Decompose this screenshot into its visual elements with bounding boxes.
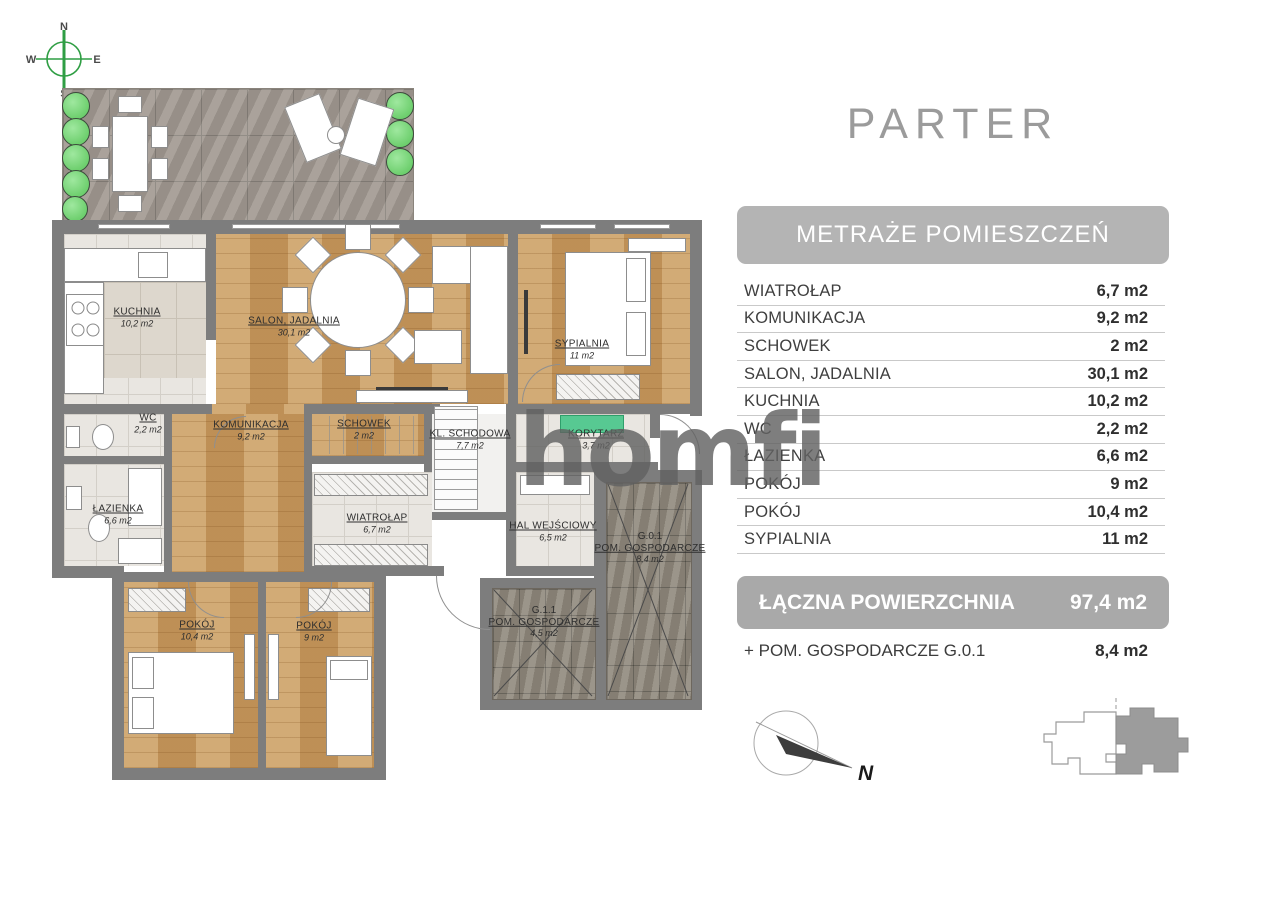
wall <box>312 456 432 464</box>
chair <box>345 224 371 250</box>
room-area: 9 m2 <box>296 632 331 644</box>
room-name: POKÓJ <box>296 621 331 633</box>
room-code: G.0.1 <box>595 531 706 543</box>
door-arc <box>436 576 490 630</box>
outdoor-side-table <box>327 126 345 144</box>
room-label-schowek: SCHOWEK2 m2 <box>337 419 391 442</box>
room-area: 30,1 m2 <box>248 327 340 339</box>
wall <box>506 566 606 576</box>
legend-row-value: 10,2 m2 <box>1087 392 1148 411</box>
wall <box>508 234 518 404</box>
room-name: KL. SCHODOWA <box>429 429 510 441</box>
compass-small-w: W <box>26 54 37 66</box>
room-name: WIATROŁAP <box>347 513 408 525</box>
wardrobe <box>128 588 186 612</box>
total-area-value: 97,4 m2 <box>1070 591 1147 615</box>
tv <box>376 387 448 390</box>
legend-row-label: SALON, JADALNIA <box>744 365 891 384</box>
legend-row-value: 30,1 m2 <box>1087 365 1148 384</box>
room-area: 11 m2 <box>555 350 609 362</box>
room-area: 6,5 m2 <box>509 532 596 544</box>
pillow <box>330 660 368 680</box>
coffee-table <box>414 330 462 364</box>
legend-row-value: 6,7 m2 <box>1097 282 1148 301</box>
room-name: POM. GOSPODARCZE <box>489 616 600 628</box>
room-area: 2,2 m2 <box>134 424 162 436</box>
room-name: WC <box>134 413 162 425</box>
room-label-kl-schodowa: KL. SCHODOWA7,7 m2 <box>429 429 510 452</box>
bush <box>62 144 90 172</box>
wardrobe <box>314 544 428 566</box>
room-name: HAL WEJŚCIOWY <box>509 521 596 533</box>
room-name: POM. GOSPODARCZE <box>595 542 706 554</box>
chair <box>118 195 142 212</box>
wall <box>52 220 64 578</box>
sofa <box>470 246 508 374</box>
legend-row-value: 6,6 m2 <box>1097 447 1148 466</box>
wall <box>300 404 440 414</box>
window <box>540 224 596 229</box>
pillow <box>626 258 646 302</box>
bush <box>386 120 414 148</box>
room-name: ŁAZIENKA <box>93 504 144 516</box>
wall <box>506 462 516 568</box>
room-label-g01: G.0.1POM. GOSPODARCZE8,4 m2 <box>595 531 706 566</box>
compass-small-e: E <box>93 54 100 66</box>
stove-burners <box>66 294 104 346</box>
wall <box>258 582 266 768</box>
room-label-komunikacja: KOMUNIKACJA9,2 m2 <box>213 420 289 443</box>
wall <box>432 512 512 520</box>
chair <box>282 287 308 313</box>
chair <box>92 158 109 180</box>
dresser <box>244 634 255 700</box>
legend-row-value: 2,2 m2 <box>1097 420 1148 439</box>
room-area: 2 m2 <box>337 430 391 442</box>
wall <box>64 456 172 464</box>
extra-area-label: + POM. GOSPODARCZE G.0.1 <box>744 641 985 661</box>
chair <box>92 126 109 148</box>
room-area: 10,4 m2 <box>179 631 214 643</box>
page-title: PARTER <box>737 100 1169 149</box>
chair <box>345 350 371 376</box>
legend-row-value: 9 m2 <box>1110 475 1148 494</box>
wall <box>480 578 594 588</box>
compass-small-icon: N W E S <box>26 22 102 98</box>
homfi-watermark: homfi <box>518 392 808 509</box>
room-label-salon: SALON, JADALNIA30,1 m2 <box>248 316 340 339</box>
room-area: 6,7 m2 <box>347 524 408 536</box>
room-area: 7,7 m2 <box>429 440 510 452</box>
floorplan-page: N W E S <box>0 0 1280 904</box>
wall <box>690 220 702 416</box>
chair <box>408 287 434 313</box>
window <box>98 224 170 229</box>
bush <box>62 118 90 146</box>
bush <box>62 196 88 222</box>
stairs <box>434 406 478 510</box>
chair <box>118 96 142 113</box>
wall <box>164 404 172 576</box>
legend-row-label: SCHOWEK <box>744 337 831 356</box>
room-name: POKÓJ <box>179 620 214 632</box>
window <box>614 224 670 229</box>
room-label-g11: G.1.1POM. GOSPODARCZE4,5 m2 <box>489 605 600 640</box>
bush <box>386 148 414 176</box>
kuchnia-floor-inner <box>104 282 206 378</box>
kitchen-sink <box>138 252 168 278</box>
room-name: SYPIALNIA <box>555 339 609 351</box>
room-label-wiatrolap: WIATROŁAP6,7 m2 <box>347 513 408 536</box>
room-area: 6,6 m2 <box>93 515 144 527</box>
total-area-bar: ŁĄCZNA POWIERZCHNIA 97,4 m2 <box>737 576 1169 629</box>
chair <box>151 158 168 180</box>
sliding-door <box>232 224 400 229</box>
legend-row-value: 11 m2 <box>1102 530 1148 549</box>
compass-large-icon: N <box>740 698 880 798</box>
wall <box>304 404 312 576</box>
extra-area-row: + POM. GOSPODARCZE G.0.1 8,4 m2 <box>737 641 1165 661</box>
legend-header: METRAŻE POMIESZCZEŃ <box>737 206 1169 264</box>
building-locator-icon <box>1032 696 1200 788</box>
room-label-kuchnia: KUCHNIA10,2 m2 <box>113 307 160 330</box>
legend-header-label: METRAŻE POMIESZCZEŃ <box>796 221 1110 249</box>
legend-row: KOMUNIKACJA9,2 m2 <box>737 306 1165 334</box>
wall <box>112 572 124 780</box>
dresser <box>268 634 279 700</box>
wardrobe <box>314 474 428 496</box>
toilet <box>92 424 114 450</box>
room-code: G.1.1 <box>489 605 600 617</box>
bush <box>62 92 90 120</box>
washer <box>118 538 162 564</box>
legend-row: SCHOWEK2 m2 <box>737 333 1165 361</box>
wall <box>52 404 212 414</box>
total-area-label: ŁĄCZNA POWIERZCHNIA <box>759 591 1015 615</box>
legend-row-label: WIATROŁAP <box>744 282 842 301</box>
room-name: KOMUNIKACJA <box>213 420 289 432</box>
tv <box>524 290 528 354</box>
room-area: 10,2 m2 <box>113 318 160 330</box>
legend-row-value: 10,4 m2 <box>1087 503 1148 522</box>
room-label-pokoj1: POKÓJ10,4 m2 <box>179 620 214 643</box>
bush <box>62 170 90 198</box>
legend-row: SYPIALNIA11 m2 <box>737 526 1165 554</box>
legend-row-value: 2 m2 <box>1110 337 1148 356</box>
chair <box>151 126 168 148</box>
room-label-wc: WC2,2 m2 <box>134 413 162 436</box>
room-area: 9,2 m2 <box>213 431 289 443</box>
wall <box>304 566 444 576</box>
washbasin <box>66 426 80 448</box>
compass-large-n: N <box>858 762 874 785</box>
legend-row-label: KOMUNIKACJA <box>744 309 865 328</box>
room-name: KUCHNIA <box>113 307 160 319</box>
room-name: SALON, JADALNIA <box>248 316 340 328</box>
room-name: SCHOWEK <box>337 419 391 431</box>
legend-row-label: SYPIALNIA <box>744 530 831 549</box>
washbasin <box>66 486 82 510</box>
legend-row: WIATROŁAP6,7 m2 <box>737 278 1165 306</box>
g01-cross <box>606 482 690 698</box>
pillow <box>132 657 154 689</box>
extra-area-value: 8,4 m2 <box>1095 641 1148 661</box>
wall <box>206 234 216 340</box>
room-area: 4,5 m2 <box>489 628 600 640</box>
wall <box>374 572 386 780</box>
legend-row: SALON, JADALNIA30,1 m2 <box>737 361 1165 389</box>
kitchen-counter <box>64 248 206 282</box>
room-label-hal: HAL WEJŚCIOWY6,5 m2 <box>509 521 596 544</box>
tv-console <box>356 390 468 403</box>
compass-small-n: N <box>60 21 68 33</box>
wall <box>112 768 386 780</box>
pillow <box>132 697 154 729</box>
building-left-half <box>1044 712 1116 774</box>
building-right-half <box>1116 708 1188 774</box>
room-label-lazienka: ŁAZIENKA6,6 m2 <box>93 504 144 527</box>
shelf <box>628 238 686 252</box>
room-area: 8,4 m2 <box>595 554 706 566</box>
room-label-pokoj2: POKÓJ9 m2 <box>296 621 331 644</box>
pillow <box>626 312 646 356</box>
legend-row-value: 9,2 m2 <box>1097 309 1148 328</box>
room-label-sypialnia: SYPIALNIA11 m2 <box>555 339 609 362</box>
outdoor-table <box>112 116 148 192</box>
